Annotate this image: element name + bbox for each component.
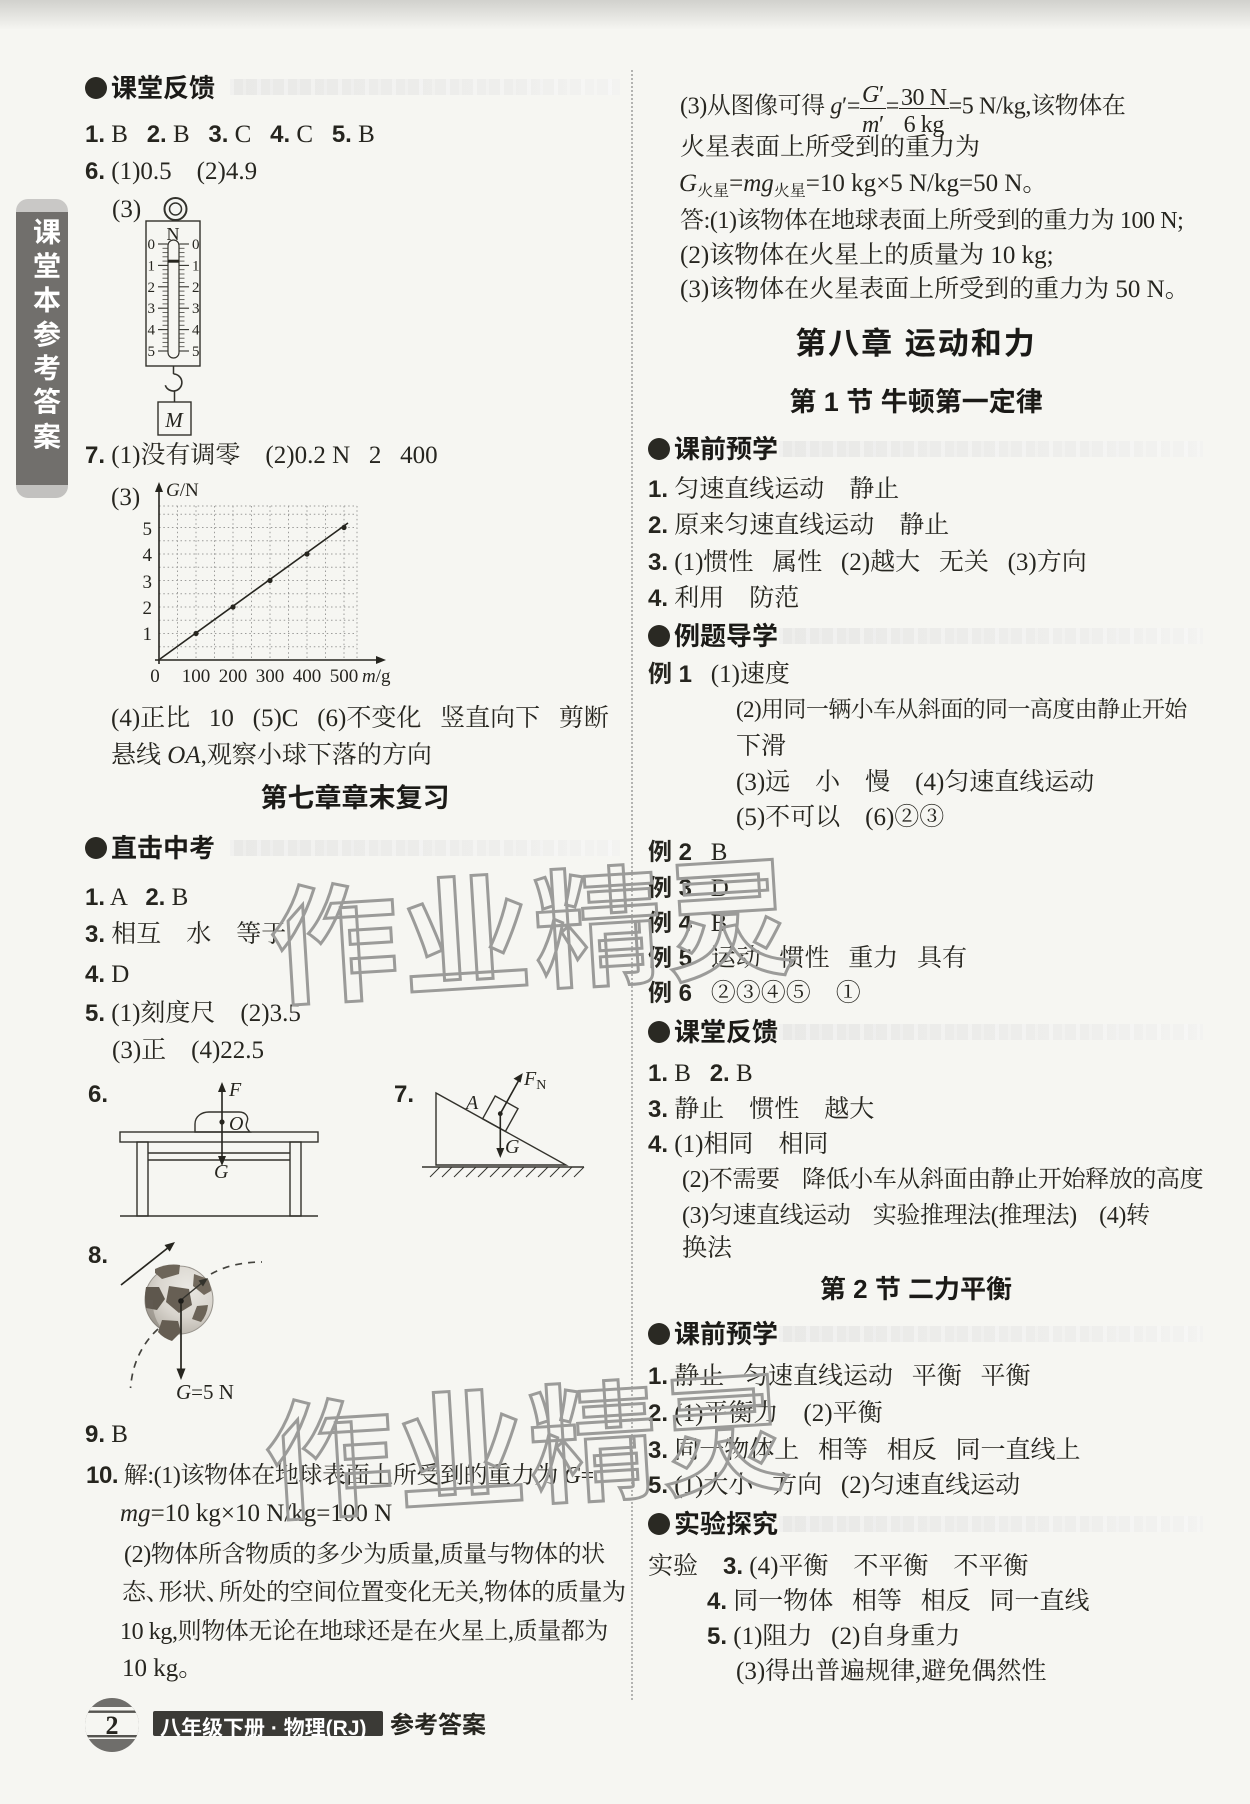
svg-text:1: 1 [143, 624, 153, 645]
svg-text:1: 1 [192, 258, 200, 274]
svg-text:G: G [505, 1136, 520, 1158]
svg-text:2: 2 [148, 280, 156, 296]
svg-text:F: F [228, 1079, 242, 1101]
svg-text:4: 4 [192, 323, 200, 339]
svg-text:2: 2 [106, 1711, 119, 1740]
svg-text:2: 2 [143, 598, 153, 619]
svg-text:A: A [464, 1092, 479, 1114]
svg-text:0: 0 [192, 237, 200, 253]
svg-text:FN: FN [523, 1068, 546, 1093]
svg-text:500: 500 [330, 666, 359, 687]
svg-text:m/g: m/g [362, 666, 391, 687]
svg-text:100: 100 [182, 666, 211, 687]
svg-text:400: 400 [293, 666, 322, 687]
svg-text:O: O [229, 1113, 243, 1135]
svg-text:4: 4 [143, 545, 153, 566]
svg-text:4: 4 [148, 323, 156, 339]
svg-text:2: 2 [192, 280, 200, 296]
svg-text:3: 3 [192, 301, 200, 317]
svg-text:M: M [164, 408, 184, 432]
svg-text:3: 3 [143, 572, 153, 593]
svg-text:5: 5 [192, 344, 200, 360]
svg-text:5: 5 [148, 344, 156, 360]
svg-text:1: 1 [148, 258, 156, 274]
svg-text:G: G [214, 1161, 229, 1183]
svg-text:0: 0 [150, 666, 160, 687]
svg-text:0: 0 [148, 237, 156, 253]
svg-text:5: 5 [143, 519, 153, 540]
svg-text:200: 200 [219, 666, 248, 687]
svg-text:3: 3 [148, 301, 156, 317]
svg-text:G/N: G/N [166, 480, 199, 501]
svg-text:300: 300 [256, 666, 285, 687]
svg-text:G=5 N: G=5 N [176, 1380, 234, 1404]
